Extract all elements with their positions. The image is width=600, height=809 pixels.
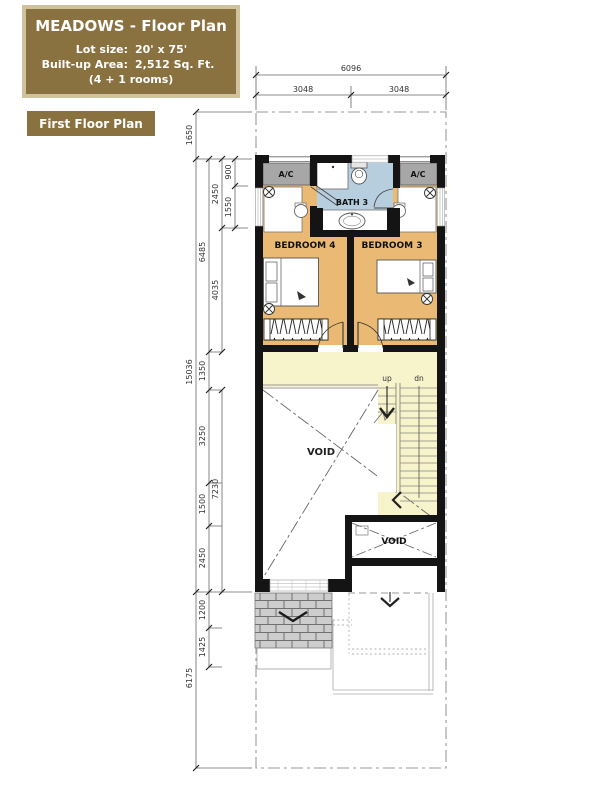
dim-landing: 1350 bbox=[198, 361, 207, 381]
dim-total-width: 6096 bbox=[341, 64, 361, 73]
dim-void-mid: 1500 bbox=[198, 494, 207, 514]
ac-right-label: A/C bbox=[411, 170, 426, 179]
dim-void-lower: 2450 bbox=[198, 548, 207, 568]
window-rear bbox=[270, 580, 328, 591]
stairs-up-label: up bbox=[382, 374, 392, 383]
dim-building-length: 15036 bbox=[185, 359, 194, 384]
ac-left-label: A/C bbox=[279, 170, 294, 179]
bath3-room bbox=[311, 161, 393, 233]
window-left bbox=[256, 188, 263, 226]
bedroom4-label: BEDROOM 4 bbox=[274, 241, 335, 251]
floor-plan-drawing: 6096 3048 3048 1650 15036 6175 6485 1350… bbox=[0, 0, 600, 809]
bedroom3-label: BEDROOM 3 bbox=[361, 241, 422, 251]
void-main-label: VOID bbox=[307, 447, 335, 458]
wardrobe-bedroom3 bbox=[378, 319, 436, 340]
dim-ledge: 900 bbox=[224, 164, 233, 179]
dim-roof-strip: 1200 bbox=[198, 600, 207, 620]
stairs-dn-label: dn bbox=[414, 374, 424, 383]
dim-porch-strip: 1425 bbox=[198, 637, 207, 657]
bath3-label: BATH 3 bbox=[336, 198, 368, 207]
dim-bath-depth: 1550 bbox=[224, 197, 233, 217]
dim-void-total: 7230 bbox=[211, 479, 220, 499]
roof-tiles-area bbox=[255, 593, 332, 669]
void-small-label: VOID bbox=[381, 537, 406, 547]
dim-front-setback: 1650 bbox=[185, 125, 194, 145]
dim-bedroom-block: 6485 bbox=[198, 242, 207, 262]
dim-ac-zone: 2450 bbox=[211, 184, 220, 204]
dim-rear-yard: 6175 bbox=[185, 668, 194, 688]
window-right bbox=[438, 188, 445, 226]
chair-bedroom4 bbox=[295, 205, 308, 218]
dim-bedroom-depth: 4035 bbox=[211, 280, 220, 300]
wardrobe-bedroom4 bbox=[264, 319, 328, 340]
dim-half-left: 3048 bbox=[293, 85, 313, 94]
dim-void-upper: 3250 bbox=[198, 426, 207, 446]
porch-outline bbox=[333, 592, 433, 694]
dim-half-right: 3048 bbox=[389, 85, 409, 94]
